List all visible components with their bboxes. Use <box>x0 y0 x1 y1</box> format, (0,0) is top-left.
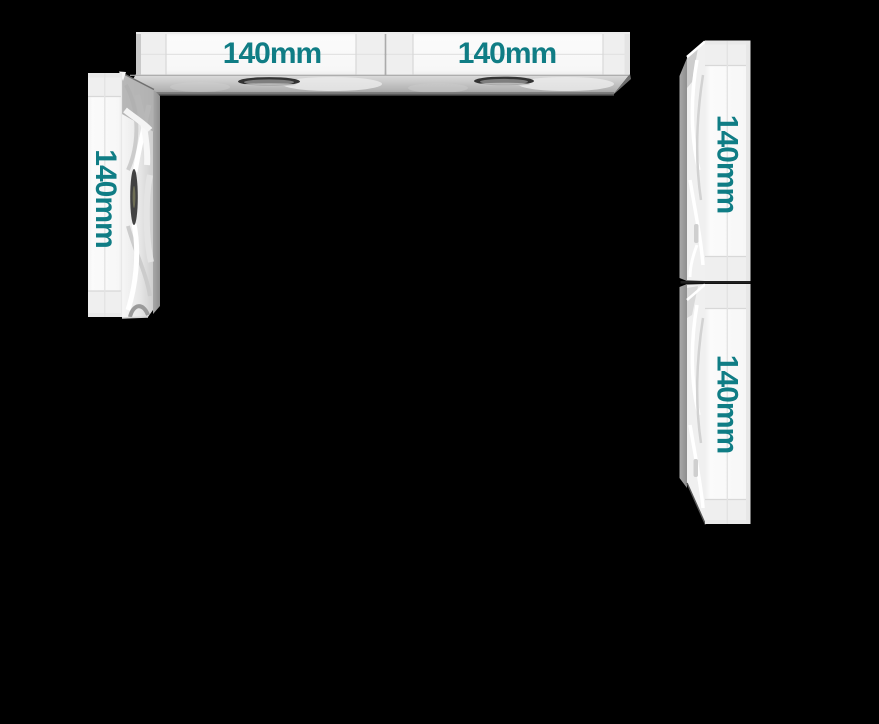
svg-text:140mm: 140mm <box>458 37 556 70</box>
svg-text:140mm: 140mm <box>223 37 321 70</box>
svg-text:140mm: 140mm <box>711 115 744 213</box>
svg-text:140mm: 140mm <box>711 355 744 453</box>
svg-text:140mm: 140mm <box>89 149 122 247</box>
